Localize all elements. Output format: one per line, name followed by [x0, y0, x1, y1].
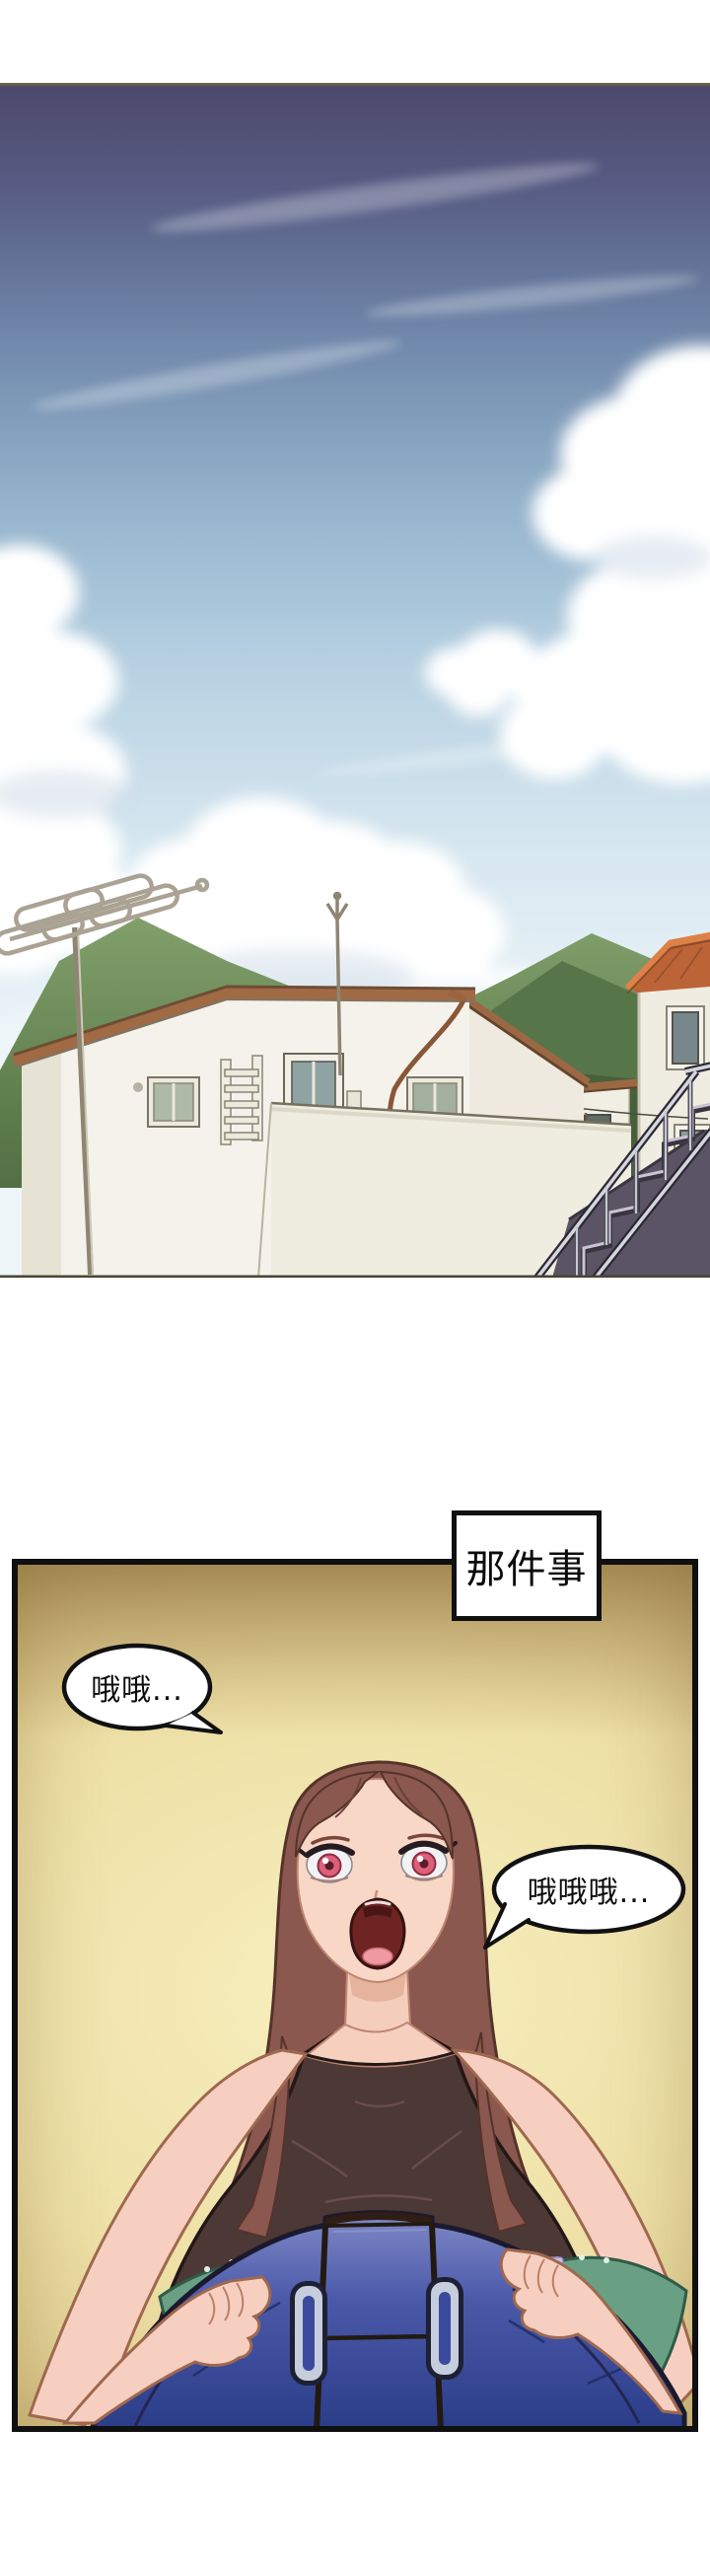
- caption-box: 那件事: [452, 1510, 602, 1621]
- bubble-text: 哦哦...: [63, 1646, 211, 1729]
- placket-strap: [317, 2224, 441, 2426]
- metal-buckle-loop: [290, 2281, 327, 2386]
- open-mouth: [351, 1899, 404, 1968]
- panel-top-border: [0, 83, 710, 86]
- comic-page: 那件事 哦哦... 哦哦哦...: [0, 0, 710, 2576]
- caption-text: 那件事: [466, 1537, 588, 1594]
- panel-bottom-border: [0, 1276, 710, 1279]
- metal-buckle-loop: [426, 2277, 463, 2380]
- bubble-text: 哦哦哦...: [498, 1847, 679, 1932]
- outdoor-scene-panel: [0, 83, 710, 1278]
- window: [148, 1077, 199, 1127]
- wall-vent: [133, 1082, 143, 1092]
